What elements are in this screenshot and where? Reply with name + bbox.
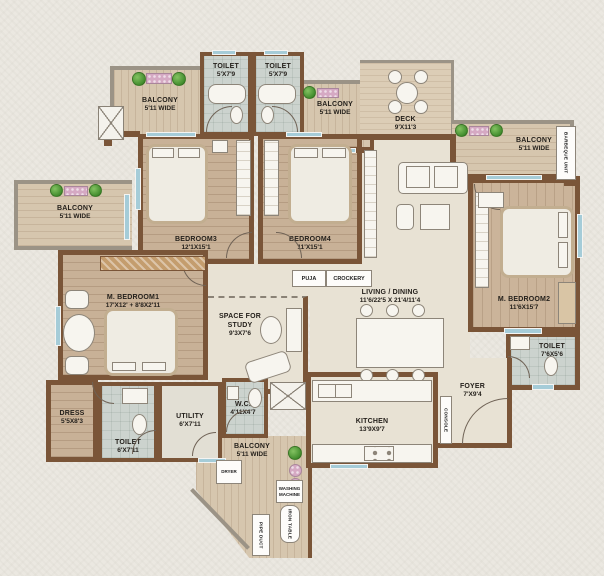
window — [577, 214, 583, 258]
tv-unit — [364, 150, 377, 258]
window — [264, 50, 288, 55]
room-label: SPACE FOR STUDY 9'3X7'6 — [214, 312, 266, 339]
plant — [288, 446, 302, 460]
plant — [132, 72, 146, 86]
flower-bed — [317, 88, 339, 98]
window — [286, 132, 322, 137]
dining-chair — [386, 304, 399, 317]
shaft — [98, 106, 124, 140]
shaft — [270, 382, 306, 410]
pillow — [112, 362, 136, 371]
dining-chair — [360, 304, 373, 317]
flower-bed — [469, 126, 489, 136]
dryer: DRYER — [216, 460, 242, 484]
wardrobe — [236, 140, 251, 216]
toilet-wc — [261, 106, 274, 124]
deck-chair — [388, 70, 402, 84]
deck-chair — [414, 100, 428, 114]
plant — [303, 86, 316, 99]
toilet-wc — [132, 414, 147, 435]
room-label: KITCHEN 13'9X9'7 — [311, 417, 433, 435]
window — [55, 306, 61, 346]
plant — [172, 72, 186, 86]
toilet-wc — [544, 356, 558, 376]
wardrobe — [264, 140, 279, 216]
barbeque-unit: BARBEQUE UNIT — [556, 126, 576, 180]
plant — [50, 184, 63, 197]
plant — [455, 124, 468, 137]
washbasin — [510, 336, 530, 350]
washing-machine: WASHING MACHINE — [276, 480, 303, 503]
window — [146, 132, 196, 137]
window — [135, 168, 141, 210]
plant — [490, 124, 503, 137]
toilet-wc — [230, 106, 243, 124]
room-label: BALCONY 5'11 WIDE — [18, 204, 132, 222]
flower-bed — [146, 73, 172, 84]
pillow — [152, 148, 174, 158]
sofa-cushion — [406, 166, 430, 188]
pillow — [558, 212, 568, 238]
pillow — [294, 148, 318, 158]
washbasin — [122, 388, 148, 404]
window — [124, 194, 130, 240]
dining-chair — [412, 304, 425, 317]
sofa-cushion — [434, 166, 458, 188]
armchair — [396, 204, 414, 230]
deck-chair — [414, 70, 428, 84]
lounge-chair — [65, 290, 89, 309]
floor-plan: LIVING / DINING 11'6/22'5 X 21'4/11'4 BA… — [0, 0, 604, 576]
flower-bed — [64, 186, 88, 196]
room-label: UTILITY 6'X7'11 — [162, 412, 218, 430]
room-label: TOILET 5'X7'9 — [256, 62, 300, 80]
study-chair — [260, 316, 282, 344]
window — [504, 328, 542, 334]
washbasin — [227, 386, 239, 400]
room-label: LIVING / DINING 11'6/22'5 X 21'4/11'4 — [325, 288, 455, 306]
window — [212, 50, 236, 55]
lounge-chair — [65, 356, 89, 375]
window — [486, 175, 542, 180]
room-label: TOILET 5'X7'9 — [204, 62, 248, 80]
room-label: DRESS 5'5X8'3 — [51, 409, 93, 427]
pillow — [322, 148, 346, 158]
puja-unit: PUJA — [292, 270, 326, 287]
wardrobe-sliding — [100, 256, 206, 271]
wall — [360, 134, 454, 140]
dresser — [558, 282, 576, 324]
flower-pot — [289, 464, 302, 477]
toilet-wc — [248, 388, 262, 408]
room-label: DECK 9'X11'3 — [360, 115, 451, 133]
lounge-table — [63, 314, 95, 352]
pillow — [178, 148, 200, 158]
pipe-duct: PIPE DUCT — [252, 514, 270, 556]
dining-table — [356, 318, 444, 368]
kitchen-sink — [335, 384, 352, 398]
window — [330, 464, 368, 469]
bathtub — [208, 84, 246, 104]
room-dress: DRESS 5'5X8'3 — [46, 380, 98, 462]
pillow — [142, 362, 166, 371]
room-label: BALCONY 5'11 WIDE — [114, 96, 206, 114]
bathtub — [258, 84, 296, 104]
room-name: LIVING / DINING — [325, 288, 455, 297]
bench — [478, 192, 504, 208]
pillow — [558, 242, 568, 268]
deck-chair — [388, 100, 402, 114]
crockery-unit: CROCKERY — [326, 270, 372, 287]
plant — [89, 184, 102, 197]
coffee-table — [420, 204, 450, 230]
console-table: CONSOLE — [440, 396, 452, 444]
nightstand — [212, 140, 228, 153]
study-desk — [286, 308, 302, 352]
window — [532, 384, 554, 390]
hob — [364, 446, 394, 461]
iron-table: IRON TABLE — [280, 505, 300, 543]
